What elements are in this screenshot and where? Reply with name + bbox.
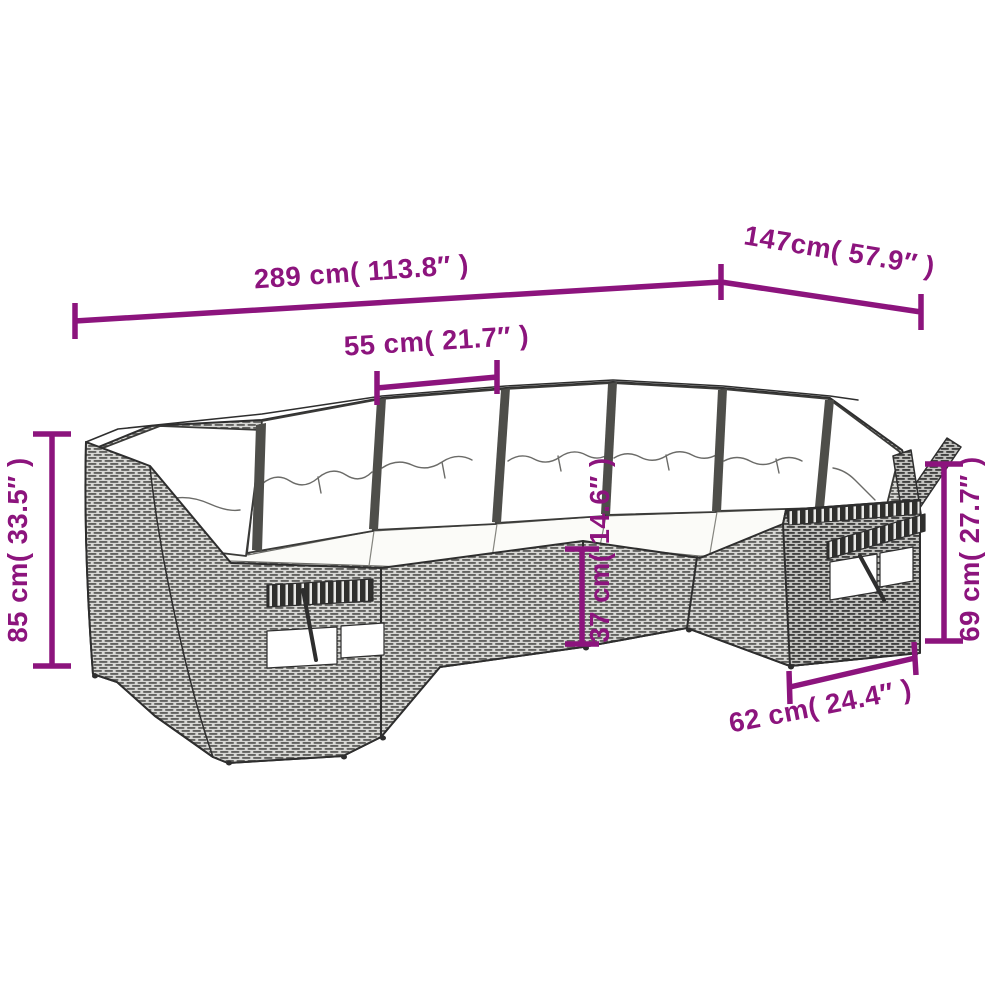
back-cushion [373, 389, 505, 530]
dim-total-height-label: 85 cm( 33.5″ ) [2, 457, 33, 642]
dim-arm-height-label: 69 cm( 27.7″ ) [954, 456, 985, 641]
dim-total-width-label: 289 cm( 113.8″ ) [253, 249, 470, 295]
dim-right-depth-label: 147cm( 57.9″ ) [742, 219, 937, 281]
dim-seat-height-label: 37 cm( 14.6″ ) [584, 457, 615, 642]
dim-total-height: 85 cm( 33.5″ ) [2, 434, 71, 666]
dim-right-depth: 147cm( 57.9″ ) [721, 219, 937, 330]
back-cushion [716, 389, 829, 511]
product-dimension-diagram: 289 cm( 113.8″ ) 147cm( 57.9″ ) 55 cm( 2… [0, 0, 1000, 1000]
dim-total-width: 289 cm( 113.8″ ) [75, 249, 721, 339]
back-cushion [605, 383, 722, 515]
back-cushion [247, 399, 381, 553]
dim-seat-width-label: 55 cm( 21.7″ ) [343, 319, 530, 361]
